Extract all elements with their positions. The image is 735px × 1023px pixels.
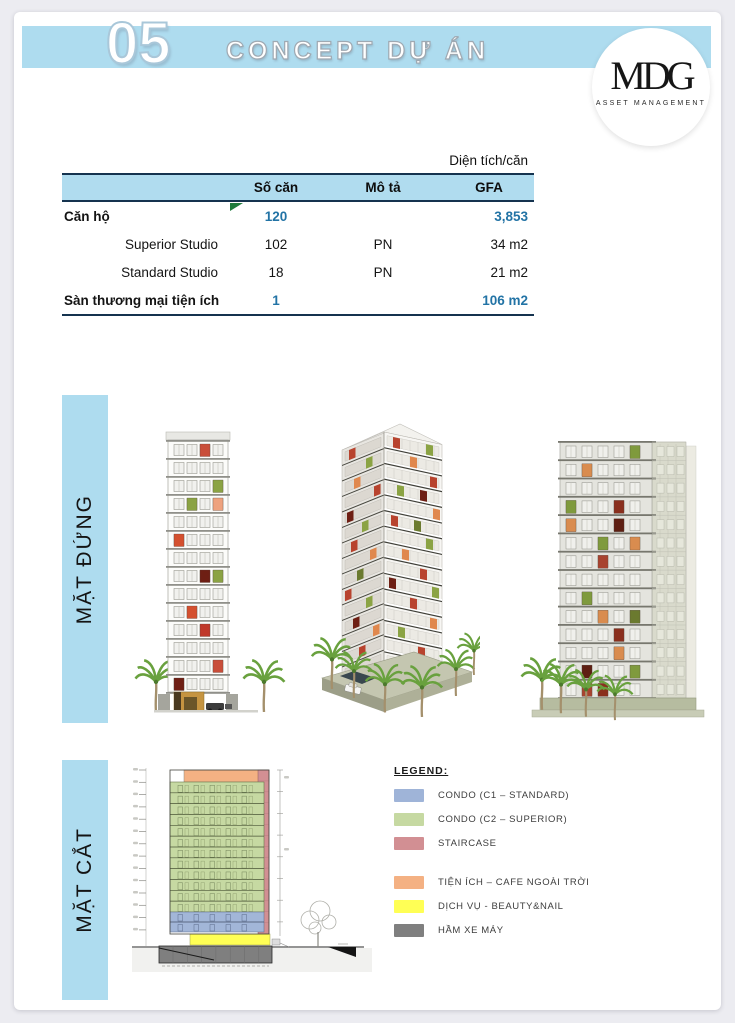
legend-item: CONDO (C2 – SUPERIOR) bbox=[394, 813, 694, 826]
column-header-gfa: GFA bbox=[444, 180, 534, 195]
cross-section-legend: LEGEND: CONDO (C1 – STANDARD) CONDO (C2 … bbox=[394, 765, 694, 948]
row-gfa: 3,853 bbox=[444, 209, 534, 224]
legend-swatch-condo-c1 bbox=[394, 789, 424, 802]
cross-section-drawing bbox=[132, 760, 372, 985]
elevation-3d-rendering bbox=[310, 416, 480, 741]
row-so-can: 18 bbox=[230, 265, 322, 280]
company-logo: MDG ASSET MANAGEMENT bbox=[592, 28, 710, 146]
legend-swatch-dich-vu bbox=[394, 900, 424, 913]
section-number: 05 bbox=[106, 16, 171, 72]
row-label: Căn hộ bbox=[62, 209, 230, 224]
row-mo-ta: PN bbox=[322, 237, 444, 252]
row-so-can: 120 bbox=[230, 209, 322, 224]
table-header-row: Số căn Mô tả GFA bbox=[62, 173, 534, 202]
legend-label: CONDO (C1 – STANDARD) bbox=[438, 790, 569, 801]
logo-monogram: MDG bbox=[592, 52, 710, 99]
legend-label: TIỆN ÍCH – CAFE NGOÀI TRỜI bbox=[438, 877, 589, 888]
section-bar-mat-cat: MẶT CẮT bbox=[62, 760, 108, 1000]
table-row: Standard Studio 18 PN 21 m2 bbox=[62, 258, 534, 286]
row-so-can: 102 bbox=[230, 237, 322, 252]
elevation-front-rendering bbox=[126, 420, 286, 720]
table-row: Superior Studio 102 PN 34 m2 bbox=[62, 230, 534, 258]
logo-subtitle: ASSET MANAGEMENT bbox=[592, 100, 710, 107]
legend-swatch-condo-c2 bbox=[394, 813, 424, 826]
legend-label: DỊCH VỤ - BEAUTY&NAIL bbox=[438, 901, 564, 912]
table-row: Sàn thương mại tiện ích 1 106 m2 bbox=[62, 286, 534, 314]
legend-item: DỊCH VỤ - BEAUTY&NAIL bbox=[394, 900, 694, 913]
row-gfa: 106 m2 bbox=[444, 293, 534, 308]
table-row: Căn hộ 120 3,853 bbox=[62, 202, 534, 230]
unit-mix-table: Diện tích/căn Số căn Mô tả GFA Căn hộ 12… bbox=[62, 153, 534, 316]
row-mo-ta: PN bbox=[322, 265, 444, 280]
legend-label: HẦM XE MÁY bbox=[438, 925, 504, 936]
legend-title: LEGEND: bbox=[394, 765, 694, 777]
legend-item: TIỆN ÍCH – CAFE NGOÀI TRỜI bbox=[394, 876, 694, 889]
legend-swatch-tien-ich bbox=[394, 876, 424, 889]
legend-swatch-staircase bbox=[394, 837, 424, 850]
legend-label: CONDO (C2 – SUPERIOR) bbox=[438, 814, 567, 825]
legend-swatch-ham-xe-may bbox=[394, 924, 424, 937]
table-body: Căn hộ 120 3,853 Superior Studio 102 PN … bbox=[62, 202, 534, 316]
column-header-mo-ta: Mô tả bbox=[322, 180, 444, 195]
table-caption: Diện tích/căn bbox=[62, 153, 534, 173]
section-label-mat-dung: MẶT ĐỨNG bbox=[73, 494, 97, 624]
row-gfa: 21 m2 bbox=[444, 265, 534, 280]
legend-item: HẦM XE MÁY bbox=[394, 924, 694, 937]
legend-item: CONDO (C1 – STANDARD) bbox=[394, 789, 694, 802]
row-label: Superior Studio bbox=[62, 237, 230, 252]
section-bar-mat-dung: MẶT ĐỨNG bbox=[62, 395, 108, 723]
row-label: Sàn thương mại tiện ích bbox=[62, 293, 230, 308]
elevation-side-rendering bbox=[520, 426, 730, 721]
legend-label: STAIRCASE bbox=[438, 838, 497, 849]
legend-item: STAIRCASE bbox=[394, 837, 694, 850]
page-title: CONCEPT DỰ ÁN bbox=[226, 37, 489, 66]
column-header-so-can: Số căn bbox=[230, 180, 322, 195]
slide-page: 05 CONCEPT DỰ ÁN MDG ASSET MANAGEMENT Di… bbox=[14, 12, 721, 1010]
row-so-can: 1 bbox=[230, 293, 322, 308]
row-gfa: 34 m2 bbox=[444, 237, 534, 252]
row-label: Standard Studio bbox=[62, 265, 230, 280]
section-label-mat-cat: MẶT CẮT bbox=[73, 827, 97, 933]
